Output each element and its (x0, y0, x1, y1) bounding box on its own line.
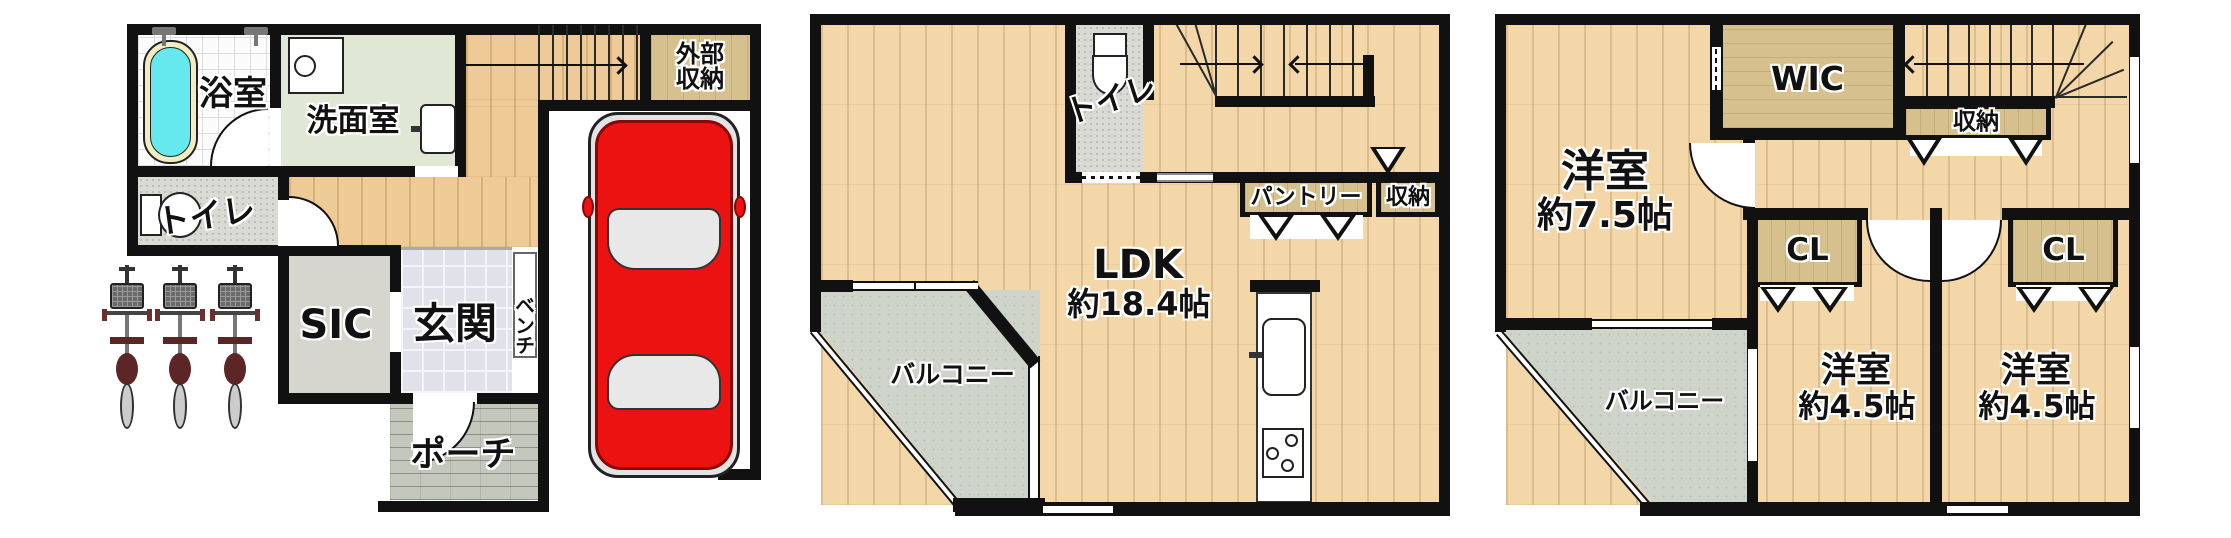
room-label-closet-left: CL (1780, 230, 1835, 270)
stair-tread (1947, 25, 1949, 96)
window (1592, 319, 1712, 329)
room-label-bedroom-right-size: 約4.5帖 (1978, 390, 2096, 424)
wall-segment (1755, 208, 1868, 220)
wall-segment (2002, 208, 2129, 220)
stair-tread (2031, 25, 2033, 96)
wall-segment (1893, 25, 1905, 128)
wall-segment (1506, 318, 1592, 330)
wall-segment (1897, 96, 2055, 108)
room-label-bedroom-left: 洋室 (1820, 352, 1892, 390)
window (2130, 345, 2139, 430)
floor-plan-canvas: 浴室 洗面室 トイレ SIC 玄関 ベンチ ポーチ 外部収納 (0, 0, 2231, 538)
room-label-closet-right: CL (2036, 230, 2091, 270)
room-label-wic: WIC (1760, 58, 1855, 100)
room-label-bedroom-left-size: 約4.5帖 (1798, 390, 1916, 424)
room-label-bedroom-main-size: 約7.5帖 (1522, 196, 1688, 236)
floor3-plan: 洋室 約7.5帖 WIC 収納 CL CL 洋室 約4.5帖 洋室 約4.5帖 … (0, 0, 2231, 538)
window (1748, 347, 1757, 463)
room-label-storage: 収納 (1950, 108, 2002, 136)
stair-winder-line (2055, 96, 2127, 98)
room-label-bedroom-right: 洋室 (2000, 352, 2072, 390)
stair-tread (1989, 25, 1991, 96)
window (1947, 504, 2008, 515)
stair-tread (1926, 25, 1928, 96)
stair-tread (1968, 25, 1970, 96)
wall-segment (1495, 14, 1506, 332)
wall-segment (1495, 14, 2140, 25)
room-label-balcony: バルコニー (1598, 387, 1731, 417)
stair-tread (2052, 25, 2054, 96)
wall-segment (1640, 502, 2140, 516)
stair-tread (2010, 25, 2012, 96)
window (2130, 55, 2139, 165)
stair-arrow (1914, 63, 2084, 65)
room-label-bedroom-main: 洋室 (1530, 148, 1680, 196)
wall-segment (1710, 128, 1905, 140)
sliding-door (1712, 47, 1721, 90)
wall-segment (1930, 208, 1942, 505)
